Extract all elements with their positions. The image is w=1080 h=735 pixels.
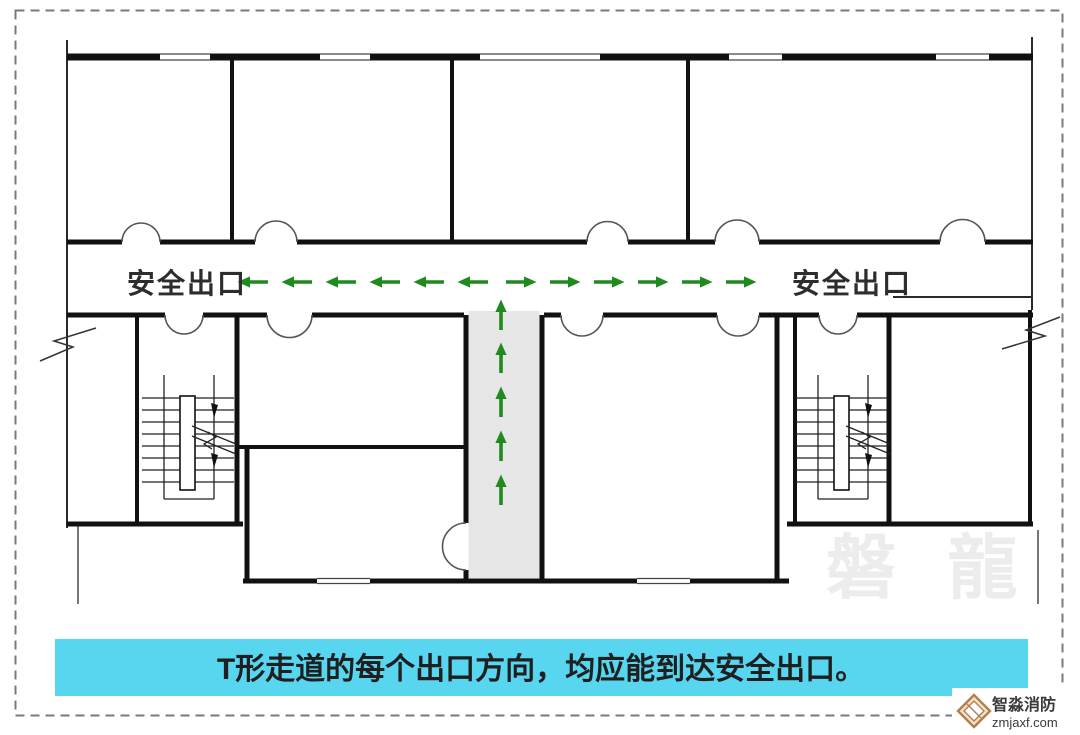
arrow-left-icon bbox=[414, 276, 445, 287]
arrow-right-icon bbox=[550, 276, 581, 287]
arrow-right-icon bbox=[638, 276, 669, 287]
door-icon bbox=[561, 315, 603, 336]
door-icon bbox=[255, 221, 297, 242]
arrow-right-icon bbox=[726, 276, 757, 287]
caption-text: T形走道的每个出口方向，均应能到达安全出口。 bbox=[217, 652, 865, 686]
staircase-right bbox=[796, 375, 890, 499]
safety-exit-label-left: 安全出口 bbox=[127, 267, 247, 299]
arrow-left-icon bbox=[326, 276, 357, 287]
arrow-right-icon bbox=[594, 276, 625, 287]
arrow-left-icon bbox=[370, 276, 401, 287]
evacuation-arrows-right bbox=[506, 276, 757, 287]
door-icon bbox=[717, 315, 759, 336]
staircase-left bbox=[142, 375, 236, 499]
lower-left-walls bbox=[67, 315, 464, 581]
door-icon bbox=[819, 315, 857, 334]
arrow-right-icon bbox=[506, 276, 537, 287]
corridor-bottom-wall bbox=[67, 297, 1033, 315]
door-icon bbox=[587, 222, 628, 243]
door-icon bbox=[122, 223, 160, 242]
door-icon bbox=[267, 315, 312, 338]
bottom-wall bbox=[243, 579, 789, 584]
evacuation-arrows-left bbox=[238, 276, 489, 287]
logo-brand-text: 智淼消防 bbox=[992, 695, 1056, 714]
arrow-left-icon bbox=[282, 276, 313, 287]
floor-plan-svg: 安全出口 安全出口 磐 龍 T形走道的每个出口方向，均应能到达安全出口。 智淼消… bbox=[0, 0, 1080, 735]
logo-site-text: zmjaxf.com bbox=[992, 715, 1058, 730]
arrow-right-icon bbox=[682, 276, 713, 287]
corner-logo: 智淼消防 zmjaxf.com bbox=[952, 688, 1064, 735]
door-icon bbox=[165, 315, 203, 334]
door-icon bbox=[715, 220, 759, 242]
door-icon bbox=[443, 523, 467, 570]
upper-room-partitions bbox=[232, 57, 688, 242]
arrow-left-icon bbox=[458, 276, 489, 287]
watermark-text: 磐 龍 bbox=[826, 529, 1033, 607]
caption-bar: T形走道的每个出口方向，均应能到达安全出口。 bbox=[55, 639, 1028, 696]
wall-break-symbols bbox=[40, 317, 1060, 361]
exterior-walls bbox=[67, 37, 1038, 604]
safety-exit-label-right: 安全出口 bbox=[792, 267, 912, 299]
top-wall bbox=[67, 54, 1033, 60]
evacuation-diagram-canvas: 安全出口 安全出口 磐 龍 T形走道的每个出口方向，均应能到达安全出口。 智淼消… bbox=[0, 0, 1080, 735]
door-icon bbox=[940, 220, 985, 243]
